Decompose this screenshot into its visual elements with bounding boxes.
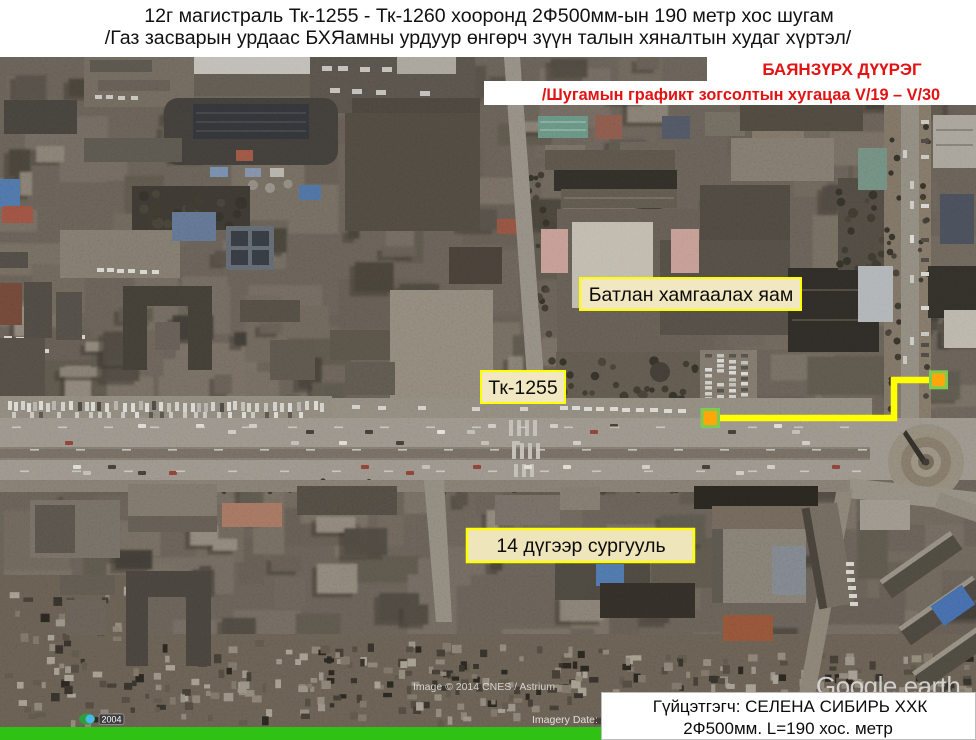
svg-text:2004: 2004 <box>101 715 121 725</box>
svg-text:Батлан хамгаалах яам: Батлан хамгаалах яам <box>589 284 793 306</box>
svg-text:Image © 2014 CNES / Astrium: Image © 2014 CNES / Astrium <box>413 681 555 693</box>
svg-text:Гүйцэтгэгч: СЕЛЕНА СИБИРЬ ХХК: Гүйцэтгэгч: СЕЛЕНА СИБИРЬ ХХК <box>653 697 928 716</box>
svg-text:2Ф500мм. L=190 хос. метр: 2Ф500мм. L=190 хос. метр <box>683 719 893 738</box>
svg-text:Тк-1255: Тк-1255 <box>488 377 558 399</box>
svg-text:12г магистраль Тк-1255 - Тк-12: 12г магистраль Тк-1255 - Тк-1260 хооронд… <box>144 5 834 27</box>
svg-text:Imagery Date:: Imagery Date: <box>532 714 598 726</box>
svg-text:14 дүгээр сургууль: 14 дүгээр сургууль <box>496 535 665 557</box>
svg-text:/Газ засварын урдаас БХЯамны у: /Газ засварын урдаас БХЯамны урдуур өнгө… <box>105 27 852 49</box>
svg-text:БАЯНЗҮРХ ДҮҮРЭГ: БАЯНЗҮРХ ДҮҮРЭГ <box>762 60 922 79</box>
svg-text:/Шугамын графикт зогсолтын хуг: /Шугамын графикт зогсолтын хугацаа V/19 … <box>542 86 940 104</box>
